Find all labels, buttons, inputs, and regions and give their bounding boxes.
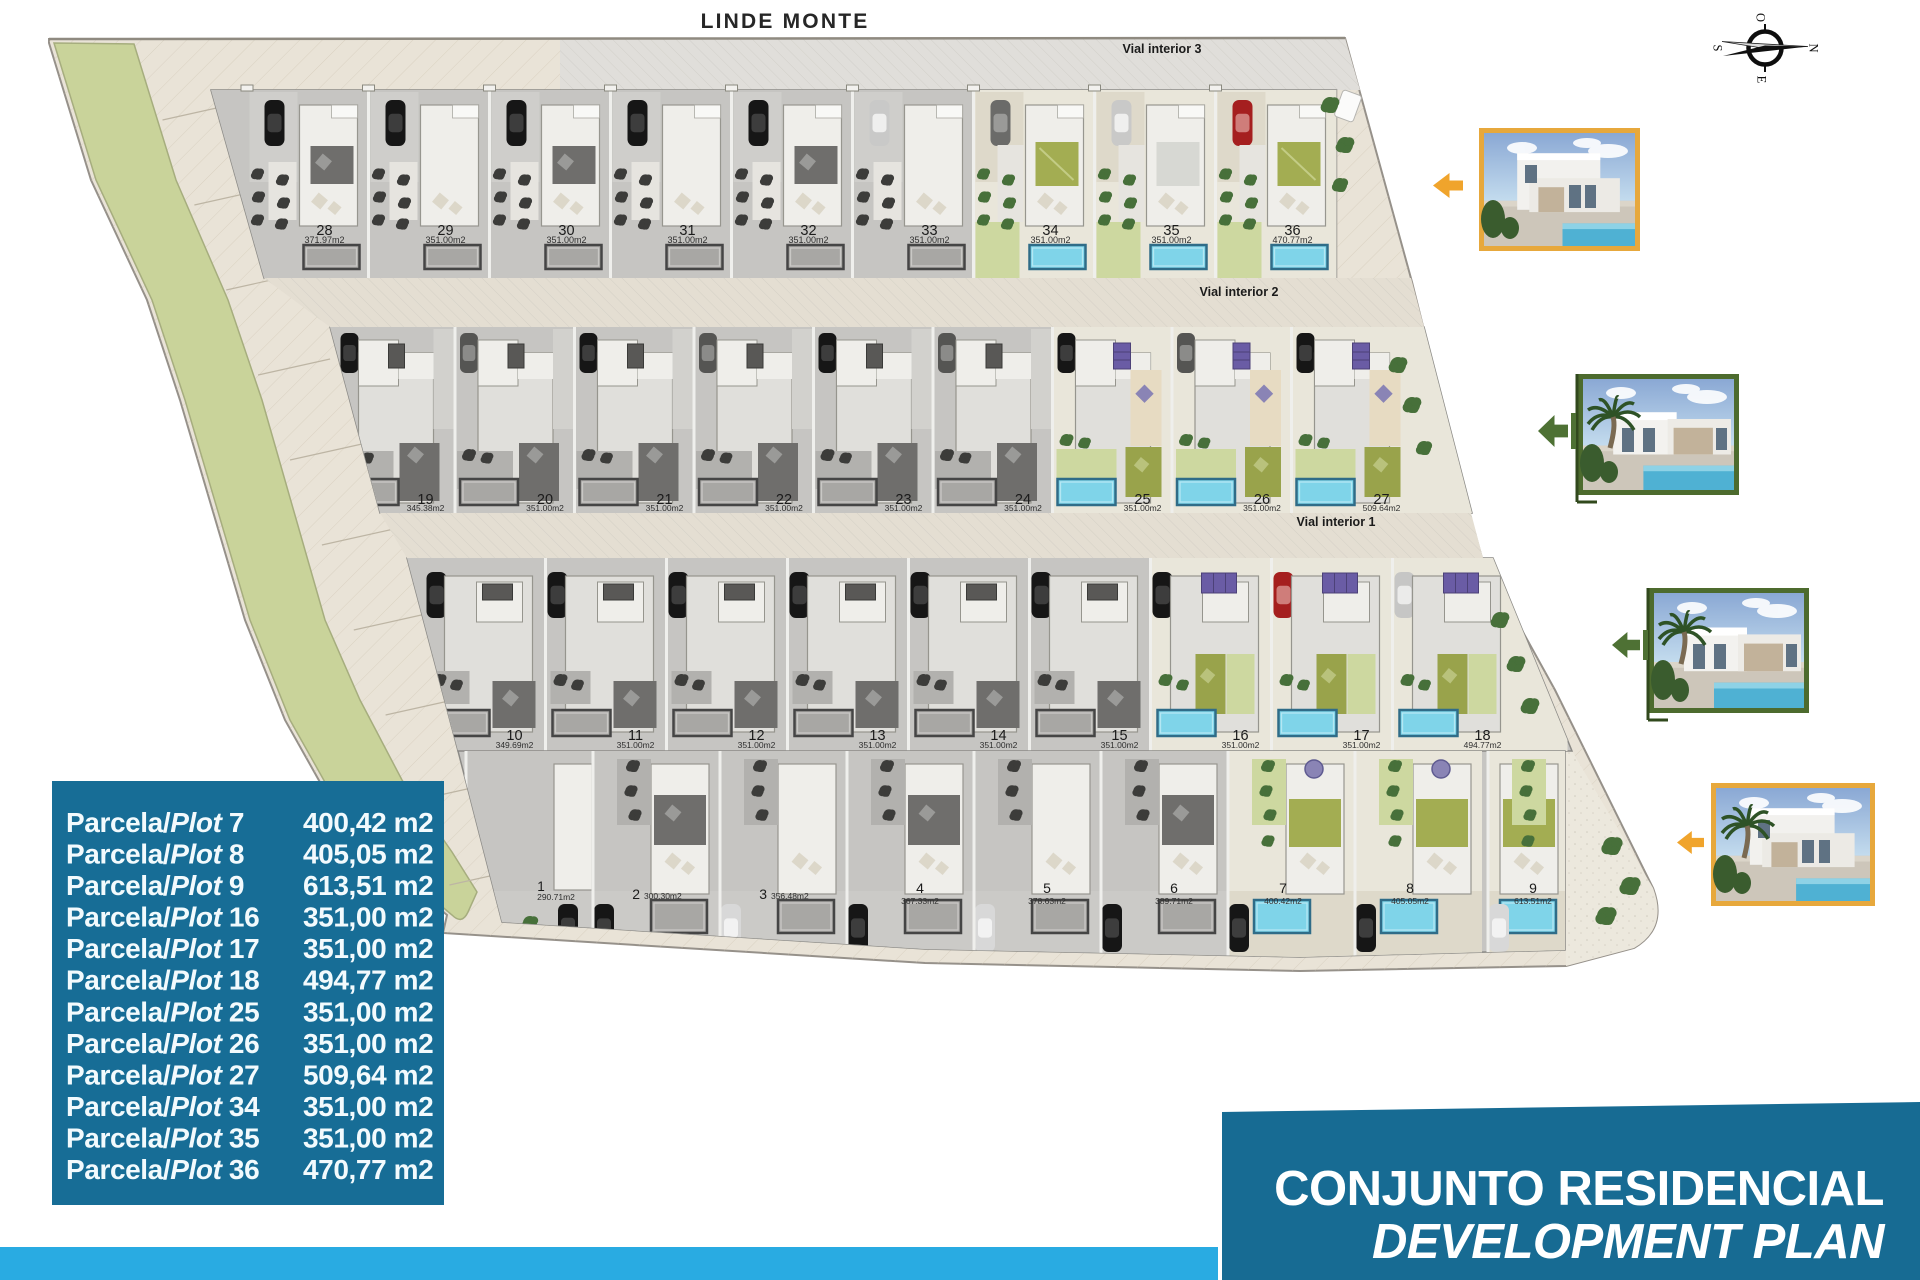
svg-text:345.38m2: 345.38m2: [407, 503, 445, 513]
svg-text:378.63m2: 378.63m2: [1028, 896, 1066, 906]
svg-text:6: 6: [1170, 880, 1178, 896]
svg-text:351.00m2: 351.00m2: [1124, 503, 1162, 513]
svg-text:4: 4: [916, 880, 924, 896]
svg-text:351,00 m2: 351,00 m2: [303, 1028, 433, 1059]
svg-text:470.77m2: 470.77m2: [1272, 235, 1312, 245]
svg-text:Parcela/Plot 7: Parcela/Plot 7: [66, 807, 244, 838]
svg-text:Parcela/Plot 17: Parcela/Plot 17: [66, 933, 259, 964]
svg-text:351.00m2: 351.00m2: [788, 235, 828, 245]
svg-text:613.51m2: 613.51m2: [1514, 896, 1552, 906]
svg-text:Vial interior 1: Vial interior 1: [1297, 515, 1376, 529]
svg-text:351.00m2: 351.00m2: [617, 740, 655, 750]
svg-text:Vial interior 2: Vial interior 2: [1200, 285, 1279, 299]
svg-text:Parcela/Plot 16: Parcela/Plot 16: [66, 902, 259, 933]
svg-text:351,00 m2: 351,00 m2: [303, 1123, 433, 1154]
svg-text:367.33m2: 367.33m2: [901, 896, 939, 906]
svg-text:371.97m2: 371.97m2: [304, 235, 344, 245]
svg-text:509,64 m2: 509,64 m2: [303, 1059, 433, 1090]
svg-text:7: 7: [1279, 880, 1287, 896]
svg-text:400.42m2: 400.42m2: [1264, 896, 1302, 906]
svg-text:494,77 m2: 494,77 m2: [303, 965, 433, 996]
svg-text:N: N: [1807, 43, 1821, 52]
svg-text:Parcela/Plot 18: Parcela/Plot 18: [66, 965, 259, 996]
svg-text:CONJUNTO RESIDENCIAL: CONJUNTO RESIDENCIAL: [1274, 1162, 1884, 1216]
svg-text:Parcela/Plot 27: Parcela/Plot 27: [66, 1059, 259, 1090]
svg-text:349.69m2: 349.69m2: [496, 740, 534, 750]
svg-text:351,00 m2: 351,00 m2: [303, 933, 433, 964]
svg-text:Parcela/Plot 9: Parcela/Plot 9: [66, 870, 244, 901]
svg-text:E: E: [1755, 76, 1769, 84]
svg-text:8: 8: [1406, 880, 1414, 896]
svg-text:400,42 m2: 400,42 m2: [303, 807, 433, 838]
svg-text:351,00 m2: 351,00 m2: [303, 1091, 433, 1122]
svg-text:351.00m2: 351.00m2: [526, 503, 564, 513]
svg-text:351.00m2: 351.00m2: [1343, 740, 1381, 750]
svg-text:470,77 m2: 470,77 m2: [303, 1154, 433, 1185]
svg-text:351.00m2: 351.00m2: [646, 503, 684, 513]
svg-text:DEVELOPMENT PLAN: DEVELOPMENT PLAN: [1372, 1215, 1886, 1269]
svg-text:LINDE MONTE: LINDE MONTE: [701, 10, 870, 33]
svg-text:405,05 m2: 405,05 m2: [303, 839, 433, 870]
svg-text:S: S: [1711, 45, 1725, 52]
svg-text:351.00m2: 351.00m2: [546, 235, 586, 245]
svg-text:351.00m2: 351.00m2: [1101, 740, 1139, 750]
svg-text:Parcela/Plot 8: Parcela/Plot 8: [66, 839, 244, 870]
svg-text:351.00m2: 351.00m2: [885, 503, 923, 513]
svg-text:351,00 m2: 351,00 m2: [303, 996, 433, 1027]
svg-text:351.00m2: 351.00m2: [667, 235, 707, 245]
svg-text:O: O: [1754, 13, 1768, 22]
svg-text:613,51 m2: 613,51 m2: [303, 870, 433, 901]
svg-text:351.00m2: 351.00m2: [859, 740, 897, 750]
svg-text:351.00m2: 351.00m2: [765, 503, 803, 513]
svg-text:351.00m2: 351.00m2: [738, 740, 776, 750]
svg-text:351.00m2: 351.00m2: [980, 740, 1018, 750]
svg-text:Parcela/Plot 34: Parcela/Plot 34: [66, 1091, 260, 1122]
svg-text:509.64m2: 509.64m2: [1363, 503, 1401, 513]
svg-text:Parcela/Plot 25: Parcela/Plot 25: [66, 996, 259, 1027]
svg-text:351.00m2: 351.00m2: [1222, 740, 1260, 750]
svg-text:Parcela/Plot 36: Parcela/Plot 36: [66, 1154, 259, 1185]
svg-text:9: 9: [1529, 880, 1537, 896]
svg-text:351,00 m2: 351,00 m2: [303, 902, 433, 933]
svg-text:351.00m2: 351.00m2: [1243, 503, 1281, 513]
svg-text:389.71m2: 389.71m2: [1155, 896, 1193, 906]
svg-text:290.71m2: 290.71m2: [537, 892, 575, 902]
svg-text:Parcela/Plot 26: Parcela/Plot 26: [66, 1028, 259, 1059]
svg-text:351.00m2: 351.00m2: [1151, 235, 1191, 245]
svg-text:494.77m2: 494.77m2: [1464, 740, 1502, 750]
svg-text:405.05m2: 405.05m2: [1391, 896, 1429, 906]
svg-text:351.00m2: 351.00m2: [909, 235, 949, 245]
svg-text:Parcela/Plot 35: Parcela/Plot 35: [66, 1123, 259, 1154]
svg-text:351.00m2: 351.00m2: [425, 235, 465, 245]
svg-text:351.00m2: 351.00m2: [1004, 503, 1042, 513]
svg-text:Vial interior 3: Vial interior 3: [1123, 42, 1202, 56]
svg-text:351.00m2: 351.00m2: [1030, 235, 1070, 245]
svg-text:5: 5: [1043, 880, 1051, 896]
